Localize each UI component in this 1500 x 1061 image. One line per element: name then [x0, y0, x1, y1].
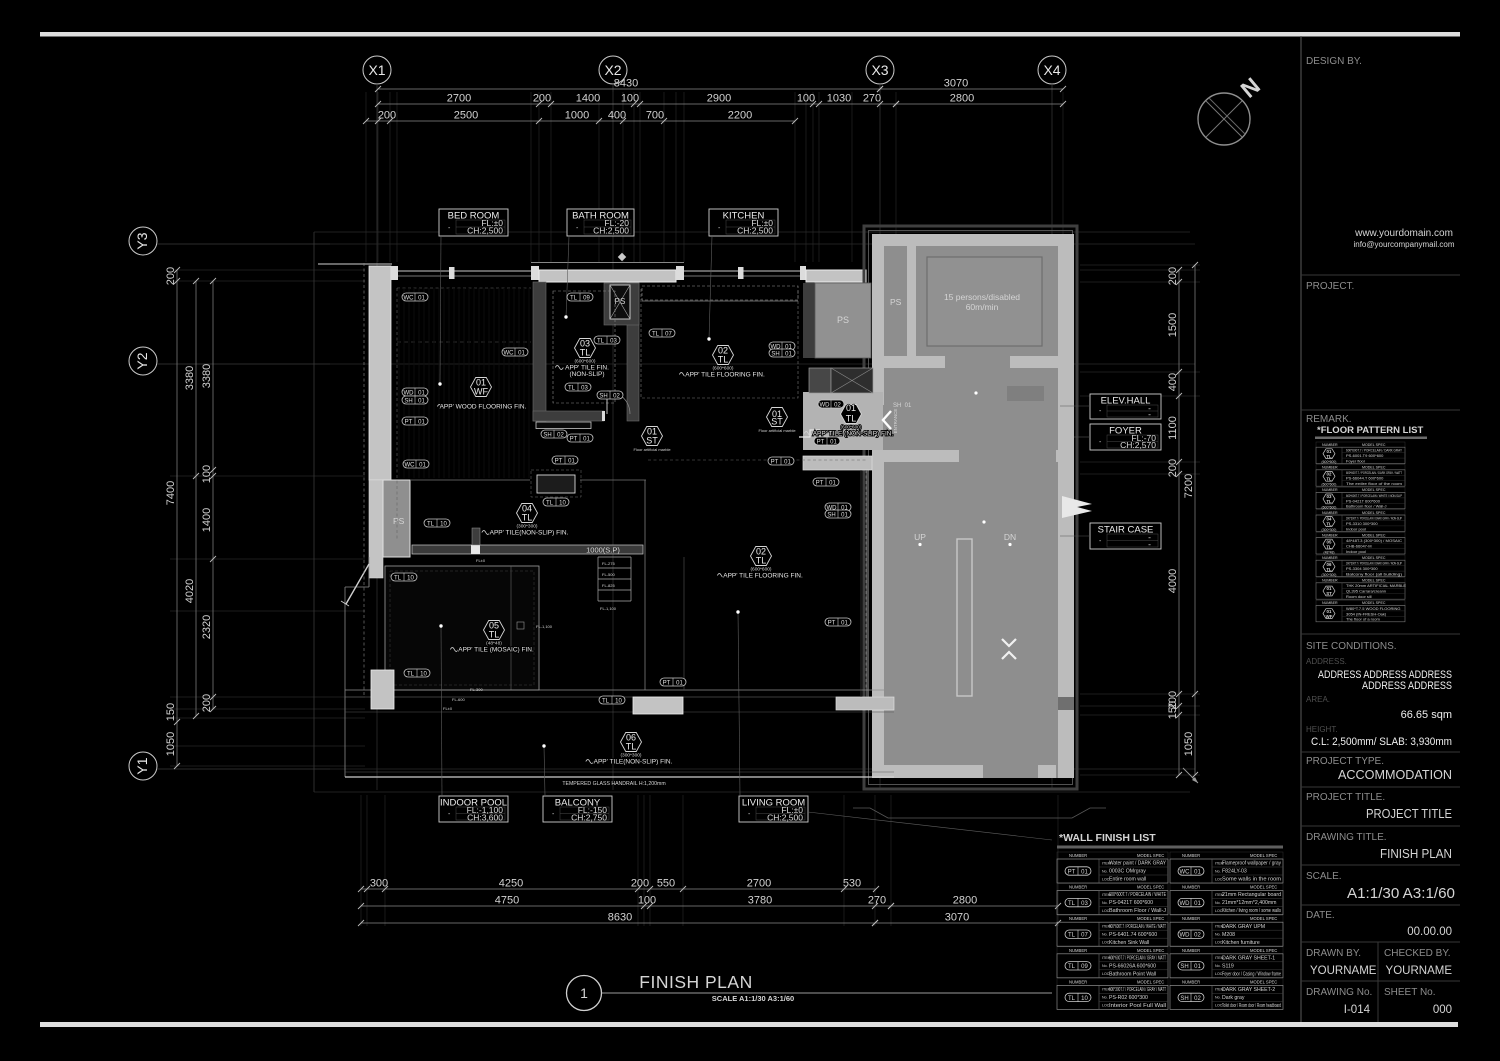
svg-text:2800: 2800 — [950, 93, 974, 105]
svg-text:01: 01 — [568, 458, 575, 464]
svg-text:TL: TL — [626, 742, 637, 752]
svg-text:NUMBER: NUMBER — [1069, 948, 1087, 953]
svg-text:7200: 7200 — [1183, 474, 1195, 498]
svg-text:02: 02 — [834, 402, 841, 408]
svg-text:FL±0: FL±0 — [476, 558, 486, 563]
svg-text:400: 400 — [608, 110, 626, 122]
svg-text:01: 01 — [785, 351, 792, 357]
svg-text:DARK GRAY SHEET-2: DARK GRAY SHEET-2 — [1222, 987, 1275, 993]
svg-text:X3: X3 — [871, 62, 888, 78]
svg-text:No.: No. — [1102, 933, 1108, 937]
svg-text:TL: TL — [652, 331, 660, 337]
svg-text:300*300T.7 / PORCELAIN / DARK: 300*300T.7 / PORCELAIN / DARK GRAY / NON… — [1346, 515, 1402, 520]
svg-text:TL: TL — [1326, 499, 1332, 504]
svg-text:60m/min: 60m/min — [966, 302, 999, 312]
svg-text:TEMPERED GLASS HANDRAIL H:1,20: TEMPERED GLASS HANDRAIL H:1,200mm — [562, 781, 665, 787]
svg-text:SH: SH — [771, 351, 779, 357]
svg-text:FL-275: FL-275 — [602, 561, 615, 566]
svg-text:CH:2,570: CH:2,570 — [1120, 440, 1156, 450]
svg-text:200: 200 — [378, 110, 396, 122]
svg-text:SH: SH — [827, 512, 835, 518]
svg-text:NUMBER: NUMBER — [1322, 511, 1338, 515]
svg-text:TL: TL — [1326, 567, 1332, 572]
svg-text:WC: WC — [404, 295, 415, 301]
svg-text:TL: TL — [427, 521, 435, 527]
svg-text:PT: PT — [663, 680, 671, 686]
svg-text:SH: SH — [1180, 996, 1188, 1002]
svg-text:1030: 1030 — [827, 93, 851, 105]
svg-text:PT: PT — [771, 459, 779, 465]
svg-text:600*600T.7 / PORCELAIN / WHITE: 600*600T.7 / PORCELAIN / WHITE / NON-SLI… — [1346, 493, 1402, 498]
svg-text:Y2: Y2 — [134, 352, 150, 369]
svg-text:21mm*12mm*2,400mm: 21mm*12mm*2,400mm — [1222, 900, 1277, 906]
svg-text:MODEL SPEC: MODEL SPEC — [1362, 488, 1386, 492]
svg-text:100: 100 — [621, 93, 639, 105]
svg-text:200: 200 — [533, 93, 551, 105]
svg-text:SHEET No.: SHEET No. — [1384, 987, 1436, 998]
svg-text:01: 01 — [583, 436, 590, 442]
svg-text:ENTRANCE: ENTRANCE — [893, 409, 898, 434]
svg-text:(300*300): (300*300) — [1322, 528, 1337, 532]
svg-text:600*600T.7 / PORCELAIN / WHITE: 600*600T.7 / PORCELAIN / WHITE / MATT — [1109, 924, 1166, 930]
svg-text:300: 300 — [370, 878, 388, 890]
svg-text:1400: 1400 — [201, 508, 213, 532]
svg-text:300*300T.7 / PORCELAIN / DARK: 300*300T.7 / PORCELAIN / DARK GRAY / NON… — [1346, 561, 1402, 566]
svg-text:YOURNAME: YOURNAME — [1386, 965, 1453, 977]
svg-text:PROJECT TITLE: PROJECT TITLE — [1366, 806, 1452, 821]
svg-text:PT: PT — [570, 436, 578, 442]
svg-text:FL-300: FL-300 — [470, 687, 483, 692]
svg-text:Indoor pool: Indoor pool — [1346, 549, 1366, 554]
svg-text:10: 10 — [420, 671, 427, 677]
svg-text:WD: WD — [1180, 901, 1191, 907]
svg-text:MODEL SPEC: MODEL SPEC — [1137, 948, 1164, 953]
svg-text:100: 100 — [797, 93, 815, 105]
svg-text:CHB-66047-M: CHB-66047-M — [1346, 544, 1372, 549]
svg-text:NUMBER: NUMBER — [1322, 466, 1338, 470]
svg-text:(600*600): (600*600) — [1322, 505, 1337, 509]
svg-text:700: 700 — [646, 110, 664, 122]
svg-text:DN: DN — [1004, 532, 1016, 542]
svg-text:01: 01 — [418, 390, 425, 396]
svg-text:TL: TL — [1326, 454, 1332, 459]
svg-text:10: 10 — [440, 521, 447, 527]
svg-text:4750: 4750 — [495, 895, 519, 907]
svg-text:MODEL SPEC: MODEL SPEC — [1362, 533, 1386, 537]
svg-text:07: 07 — [665, 331, 672, 337]
svg-text:No.: No. — [1102, 869, 1108, 873]
svg-text:01: 01 — [841, 620, 848, 626]
svg-text:02: 02 — [1194, 933, 1201, 939]
svg-text:TL: TL — [1068, 996, 1076, 1002]
svg-text:NUMBER: NUMBER — [1069, 979, 1087, 984]
svg-text:PS-6001.T9 600*600: PS-6001.T9 600*600 — [1346, 453, 1384, 458]
svg-text:4020: 4020 — [184, 579, 196, 603]
svg-text:MODEL SPEC: MODEL SPEC — [1362, 579, 1386, 583]
svg-text:MODEL SPEC: MODEL SPEC — [1137, 916, 1164, 921]
svg-text:Foyer floor: Foyer floor — [1346, 459, 1366, 464]
svg-text:01: 01 — [784, 459, 791, 465]
svg-text:MODEL SPEC: MODEL SPEC — [1250, 948, 1277, 953]
svg-text:QL395 Carrara/creann: QL395 Carrara/creann — [1346, 589, 1386, 594]
svg-text:DRAWING No.: DRAWING No. — [1306, 987, 1372, 998]
svg-text:-: - — [1148, 539, 1151, 549]
svg-text:10: 10 — [1081, 996, 1088, 1002]
svg-text:01: 01 — [829, 480, 836, 486]
svg-text:PS: PS — [393, 516, 405, 526]
svg-text:PROJECT TITLE.: PROJECT TITLE. — [1306, 792, 1385, 803]
svg-text:09: 09 — [1081, 964, 1088, 970]
svg-text:MODEL SPEC: MODEL SPEC — [1362, 556, 1386, 560]
svg-text:WC: WC — [405, 462, 416, 468]
svg-text:MODEL SPEC: MODEL SPEC — [1137, 979, 1164, 984]
svg-text:01: 01 — [418, 398, 425, 404]
svg-text:DRAWN BY.: DRAWN BY. — [1306, 948, 1361, 959]
svg-text:UP: UP — [914, 532, 926, 542]
svg-text:3070: 3070 — [945, 912, 969, 924]
svg-text:3780: 3780 — [748, 895, 772, 907]
svg-text:Flameproof wallpaper / gray: Flameproof wallpaper / gray — [1222, 861, 1281, 867]
svg-text:3380: 3380 — [184, 366, 196, 390]
svg-text:TL: TL — [489, 630, 500, 640]
svg-text:No.: No. — [1102, 964, 1108, 968]
svg-text:1050: 1050 — [165, 732, 177, 756]
svg-text:APP' WOOD FLOORING FIN.: APP' WOOD FLOORING FIN. — [440, 404, 527, 411]
svg-text:NUMBER: NUMBER — [1069, 853, 1087, 858]
svg-text:(NON-SLIP): (NON-SLIP) — [569, 371, 604, 378]
svg-text:PS-6401.74 600*600: PS-6401.74 600*600 — [1109, 932, 1157, 938]
svg-text:WC: WC — [504, 350, 515, 356]
svg-text:(600*600): (600*600) — [1322, 460, 1337, 464]
svg-text:No.: No. — [1215, 933, 1221, 937]
svg-text:SITE CONDITIONS.: SITE CONDITIONS. — [1306, 641, 1397, 652]
svg-text:NUMBER: NUMBER — [1322, 556, 1338, 560]
svg-text:1500: 1500 — [1167, 313, 1179, 337]
svg-text:600*600T.7 / PORCELAIN / DARK: 600*600T.7 / PORCELAIN / DARK GRAY — [1346, 448, 1402, 453]
svg-text:PS-R02 600*300: PS-R02 600*300 — [1109, 995, 1148, 1001]
svg-text:150: 150 — [165, 703, 177, 721]
svg-text:F824LY-03: F824LY-03 — [1222, 869, 1247, 875]
svg-text:Kitchen / living room / some w: Kitchen / living room / some walls — [1222, 908, 1281, 914]
svg-text:CH:2,750: CH:2,750 — [571, 813, 607, 823]
svg-text:Balcony floor (all building): Balcony floor (all building) — [1346, 572, 1403, 577]
svg-text:TL: TL — [1068, 901, 1076, 907]
svg-text:CH:2,500: CH:2,500 — [737, 226, 773, 236]
svg-text:AREA.: AREA. — [1306, 695, 1330, 704]
svg-text:SCALE A1:1/30 A3:1/60: SCALE A1:1/30 A3:1/60 — [712, 994, 794, 1003]
svg-text:FL-500: FL-500 — [602, 572, 615, 577]
svg-text:ADDRESS ADDRESS: ADDRESS ADDRESS — [1362, 680, 1452, 692]
svg-text:MODEL SPEC: MODEL SPEC — [1250, 853, 1277, 858]
svg-text:PROJECT.: PROJECT. — [1306, 281, 1354, 292]
svg-text:FL-1,100: FL-1,100 — [600, 606, 617, 611]
svg-text:NUMBER: NUMBER — [1182, 853, 1200, 858]
svg-text:TL: TL — [407, 671, 415, 677]
svg-text:09: 09 — [583, 295, 590, 301]
svg-text:TL: TL — [546, 500, 554, 506]
svg-text:PT: PT — [1068, 869, 1076, 875]
svg-text:100: 100 — [201, 465, 213, 483]
svg-text:PS-0421T 600*600: PS-0421T 600*600 — [1109, 900, 1153, 906]
svg-text:TL: TL — [1068, 964, 1076, 970]
svg-text:CHECKED BY.: CHECKED BY. — [1384, 948, 1451, 959]
svg-text:530: 530 — [843, 878, 861, 890]
svg-text:NUMBER: NUMBER — [1069, 916, 1087, 921]
svg-text:C.L: 2,500mm/ SLAB: 3,930mm: C.L: 2,500mm/ SLAB: 3,930mm — [1311, 736, 1452, 748]
svg-text:ST: ST — [1326, 591, 1332, 596]
svg-text:01: 01 — [830, 439, 837, 445]
svg-text:03: 03 — [610, 338, 617, 344]
svg-text:APP' TILE FLOORING FIN.: APP' TILE FLOORING FIN. — [685, 372, 765, 379]
svg-text:WF: WF — [1326, 614, 1333, 619]
svg-text:SH: SH — [404, 398, 412, 404]
svg-text:PS-66044.T 600*600: PS-66044.T 600*600 — [1346, 476, 1384, 481]
svg-text:No.: No. — [1215, 964, 1221, 968]
svg-text:Kitchen furniture: Kitchen furniture — [1222, 940, 1260, 946]
svg-text:FL±0: FL±0 — [443, 706, 453, 711]
svg-text:Foyer door / Casing / Window f: Foyer door / Casing / Window frame — [1222, 971, 1281, 977]
svg-text:SCALE.: SCALE. — [1306, 871, 1342, 882]
svg-text:TL: TL — [756, 556, 767, 566]
svg-text:Y1: Y1 — [134, 757, 150, 774]
svg-text:200: 200 — [201, 694, 213, 712]
svg-text:01: 01 — [418, 419, 425, 425]
svg-text:Room door sill: Room door sill — [1346, 594, 1372, 599]
svg-text:info@yourcompanymail.com: info@yourcompanymail.com — [1353, 240, 1454, 249]
svg-text:APP' TILE(NON-SLIP) FIN.: APP' TILE(NON-SLIP) FIN. — [490, 530, 569, 537]
svg-text:2900: 2900 — [707, 93, 731, 105]
svg-text:TL: TL — [568, 385, 576, 391]
svg-text:10: 10 — [615, 698, 622, 704]
svg-text:SH: SH — [1180, 964, 1188, 970]
svg-text:NUMBER: NUMBER — [1322, 579, 1338, 583]
svg-text:Entire room wall: Entire room wall — [1109, 877, 1146, 883]
svg-text:No.: No. — [1215, 901, 1221, 905]
svg-text:07: 07 — [1081, 933, 1088, 939]
svg-text:TL: TL — [1326, 477, 1332, 482]
svg-text:YOURNAME: YOURNAME — [1310, 965, 1377, 977]
svg-text:APP' TILE (MOSAIC) FIN.: APP' TILE (MOSAIC) FIN. — [458, 647, 534, 654]
svg-text:X4: X4 — [1043, 62, 1060, 78]
svg-text:PT: PT — [817, 439, 825, 445]
svg-text:TL: TL — [580, 348, 591, 358]
svg-text:FL-1,100: FL-1,100 — [536, 624, 553, 629]
svg-text:MODEL SPEC: MODEL SPEC — [1250, 885, 1277, 890]
svg-text:No.: No. — [1102, 996, 1108, 1000]
svg-text:200: 200 — [1167, 459, 1179, 477]
svg-text:01: 01 — [846, 403, 856, 413]
svg-text:TL: TL — [394, 575, 402, 581]
svg-text:01: 01 — [418, 295, 425, 301]
svg-text:Indoor pool: Indoor pool — [1346, 526, 1366, 531]
svg-text:2320: 2320 — [201, 615, 213, 639]
svg-text:PS: PS — [837, 315, 849, 325]
svg-text:DRAWING TITLE.: DRAWING TITLE. — [1306, 832, 1387, 843]
svg-text:21mm Rectangular board: 21mm Rectangular board — [1222, 892, 1281, 898]
svg-text:DARK GRAY SHEET-1: DARK GRAY SHEET-1 — [1222, 955, 1275, 961]
svg-text:15 persons/disabled: 15 persons/disabled — [944, 292, 1020, 302]
svg-text:03: 03 — [581, 385, 588, 391]
svg-text:No.: No. — [1215, 996, 1221, 1000]
svg-text:02: 02 — [1194, 996, 1201, 1002]
svg-text:01: 01 — [1194, 869, 1201, 875]
svg-text:Floor artificial marble: Floor artificial marble — [758, 428, 796, 433]
svg-text:3070: 3070 — [944, 78, 968, 90]
svg-text:2500: 2500 — [454, 110, 478, 122]
svg-text:S119: S119 — [1222, 963, 1234, 969]
svg-text:X1: X1 — [368, 62, 385, 78]
svg-text:NUMBER: NUMBER — [1182, 979, 1200, 984]
svg-text:CH:3,600: CH:3,600 — [467, 813, 503, 823]
svg-text:TL: TL — [1068, 933, 1076, 939]
svg-text:PT: PT — [828, 620, 836, 626]
svg-text:Interior Pool Full Wall: Interior Pool Full Wall — [1109, 1003, 1166, 1009]
svg-text:MODEL SPEC: MODEL SPEC — [1362, 601, 1386, 605]
svg-text:TL: TL — [570, 295, 578, 301]
svg-text:SH: SH — [599, 393, 607, 399]
svg-text:TL: TL — [1326, 522, 1332, 527]
svg-text:-: - — [1148, 409, 1151, 419]
svg-text:TL: TL — [846, 414, 857, 424]
svg-text:NUMBER: NUMBER — [1182, 885, 1200, 890]
svg-text:WD: WD — [404, 390, 415, 396]
svg-text:1000: 1000 — [565, 110, 589, 122]
svg-text:600*300T.7 / PORCELAIN / GRAY: 600*300T.7 / PORCELAIN / GRAY / MATT — [1109, 987, 1166, 993]
svg-text:M208: M208 — [1222, 932, 1235, 938]
svg-text:01: 01 — [518, 350, 525, 356]
svg-text:7400: 7400 — [165, 481, 177, 505]
svg-text:The entire floor of the room: The entire floor of the room — [1346, 481, 1403, 486]
svg-text:DESIGN BY.: DESIGN BY. — [1306, 56, 1362, 67]
svg-text:WC: WC — [1180, 869, 1191, 875]
svg-text:200: 200 — [165, 267, 177, 285]
svg-text:No.: No. — [1102, 901, 1108, 905]
svg-text:NUMBER: NUMBER — [1322, 443, 1338, 447]
svg-text:MODEL SPEC: MODEL SPEC — [1137, 853, 1164, 858]
svg-text:(48*48): (48*48) — [1323, 551, 1334, 555]
svg-text:200: 200 — [1167, 267, 1179, 285]
svg-text:APP' TILE FLOORING FIN.: APP' TILE FLOORING FIN. — [723, 573, 803, 580]
svg-text:NUMBER: NUMBER — [1069, 885, 1087, 890]
svg-text:X2: X2 — [604, 62, 621, 78]
svg-text:PT: PT — [555, 458, 563, 464]
svg-text:600*600T.7 / PORCELAIN / WHITE: 600*600T.7 / PORCELAIN / WHITE — [1109, 892, 1166, 898]
svg-text:1050: 1050 — [1183, 732, 1195, 756]
svg-text:PT: PT — [816, 480, 824, 486]
svg-text:PS-3304 300*300: PS-3304 300*300 — [1346, 566, 1378, 571]
svg-text:NUMBER: NUMBER — [1322, 601, 1338, 605]
svg-text:FINISH PLAN: FINISH PLAN — [1380, 847, 1452, 861]
svg-text:270: 270 — [868, 895, 886, 907]
svg-text:01: 01 — [419, 462, 426, 468]
svg-text:MODEL SPEC: MODEL SPEC — [1250, 916, 1277, 921]
svg-text:ST: ST — [646, 436, 658, 446]
svg-text:WD: WD — [1180, 933, 1191, 939]
svg-text:ADDRESS.: ADDRESS. — [1306, 657, 1347, 666]
svg-text:4000: 4000 — [1167, 569, 1179, 593]
svg-text:01: 01 — [1081, 869, 1088, 875]
svg-text:APP' TILE (NON-SLIP) FIN.: APP' TILE (NON-SLIP) FIN. — [813, 431, 894, 438]
svg-text:02: 02 — [557, 432, 564, 438]
svg-text:48*48T.3 (300*300) / MOSAIC: 48*48T.3 (300*300) / MOSAIC — [1346, 538, 1402, 543]
svg-text:CH:2,500: CH:2,500 — [767, 813, 803, 823]
svg-text:I-014: I-014 — [1344, 1004, 1371, 1016]
svg-text:THK 20mm ARTIFICIAL MARBLE: THK 20mm ARTIFICIAL MARBLE — [1346, 583, 1406, 588]
svg-text:150: 150 — [1167, 701, 1179, 719]
svg-text:*FLOOR PATTERN LIST: *FLOOR PATTERN LIST — [1317, 425, 1423, 436]
svg-text:PS: PS — [890, 297, 902, 307]
svg-text:1400: 1400 — [576, 93, 600, 105]
svg-text:Floor artificial marble: Floor artificial marble — [633, 447, 671, 452]
svg-text:NUMBER: NUMBER — [1182, 916, 1200, 921]
svg-text:DATE.: DATE. — [1306, 910, 1335, 921]
svg-text:Toilet door / Room door / Room: Toilet door / Room door / Room headboard — [1222, 1003, 1281, 1009]
svg-text:2700: 2700 — [747, 878, 771, 890]
svg-text:600*600T.7 / PORCELAIN / GRAY: 600*600T.7 / PORCELAIN / GRAY / MATT — [1109, 955, 1166, 961]
svg-text:Bathroom Point Wall: Bathroom Point Wall — [1109, 971, 1156, 977]
svg-text:MODEL SPEC: MODEL SPEC — [1362, 511, 1386, 515]
svg-text:No.: No. — [1215, 869, 1221, 873]
svg-text:CH:2,500: CH:2,500 — [593, 226, 629, 236]
svg-text:www.yourdomain.com: www.yourdomain.com — [1354, 228, 1453, 239]
svg-text:Kitchen Sink Wall: Kitchen Sink Wall — [1109, 940, 1149, 946]
svg-text:TL: TL — [1326, 544, 1332, 549]
svg-text:Some walls in the room: Some walls in the room — [1222, 877, 1281, 883]
svg-text:Water paint / DARK GRAY: Water paint / DARK GRAY — [1109, 861, 1167, 867]
svg-text:100: 100 — [638, 895, 656, 907]
svg-text:NUMBER: NUMBER — [1322, 533, 1338, 537]
svg-text:PS-3310 300*300: PS-3310 300*300 — [1346, 521, 1378, 526]
svg-text:PS: PS — [615, 297, 626, 306]
svg-text:WF: WF — [474, 387, 488, 397]
svg-text:TL: TL — [522, 513, 533, 523]
svg-text:3380: 3380 — [201, 364, 213, 388]
svg-text:Bathroom Floor / Wall-J: Bathroom Floor / Wall-J — [1109, 908, 1166, 914]
svg-text:1000(S.P): 1000(S.P) — [586, 546, 620, 555]
svg-text:The floor of a room: The floor of a room — [1346, 617, 1380, 622]
svg-text:2200: 2200 — [728, 110, 752, 122]
svg-text:APP' TILE(NON-SLIP) FIN.: APP' TILE(NON-SLIP) FIN. — [594, 759, 673, 766]
svg-text:TL: TL — [718, 355, 729, 365]
svg-text:4250: 4250 — [499, 878, 523, 890]
svg-text:TL: TL — [602, 698, 610, 704]
svg-text:03: 03 — [1081, 901, 1088, 907]
svg-text:WD: WD — [820, 402, 831, 408]
svg-text:MODEL SPEC: MODEL SPEC — [1250, 979, 1277, 984]
svg-text:DARK GRAY UPM: DARK GRAY UPM — [1222, 924, 1265, 930]
svg-text:01: 01 — [841, 512, 848, 518]
svg-text:MODEL SPEC: MODEL SPEC — [1362, 443, 1386, 447]
svg-text:NUMBER: NUMBER — [1182, 948, 1200, 953]
svg-text:01: 01 — [1194, 901, 1201, 907]
svg-text:Y3: Y3 — [134, 232, 150, 249]
svg-text:02: 02 — [613, 393, 620, 399]
svg-text:(300*300): (300*300) — [1322, 573, 1337, 577]
svg-text:HEIGHT.: HEIGHT. — [1306, 725, 1338, 734]
svg-text:600*600T.7 / PORCELAIN / DARK: 600*600T.7 / PORCELAIN / DARK GRAY / MAT… — [1346, 470, 1402, 475]
svg-text:8430: 8430 — [614, 78, 638, 90]
svg-text:PS-0421T 600*600: PS-0421T 600*600 — [1346, 498, 1381, 503]
svg-text:TL: TL — [597, 338, 605, 344]
svg-text:2800: 2800 — [953, 895, 977, 907]
svg-text:1100: 1100 — [1167, 416, 1179, 440]
svg-text:FINISH PLAN: FINISH PLAN — [639, 972, 752, 992]
svg-text:66.65 sqm: 66.65 sqm — [1401, 709, 1452, 721]
svg-text:2700: 2700 — [447, 93, 471, 105]
svg-text:PROJECT TYPE.: PROJECT TYPE. — [1306, 756, 1384, 767]
svg-text:CH:2,500: CH:2,500 — [467, 226, 503, 236]
svg-text:3054 (IN-FRESH-Oak): 3054 (IN-FRESH-Oak) — [1346, 611, 1387, 616]
